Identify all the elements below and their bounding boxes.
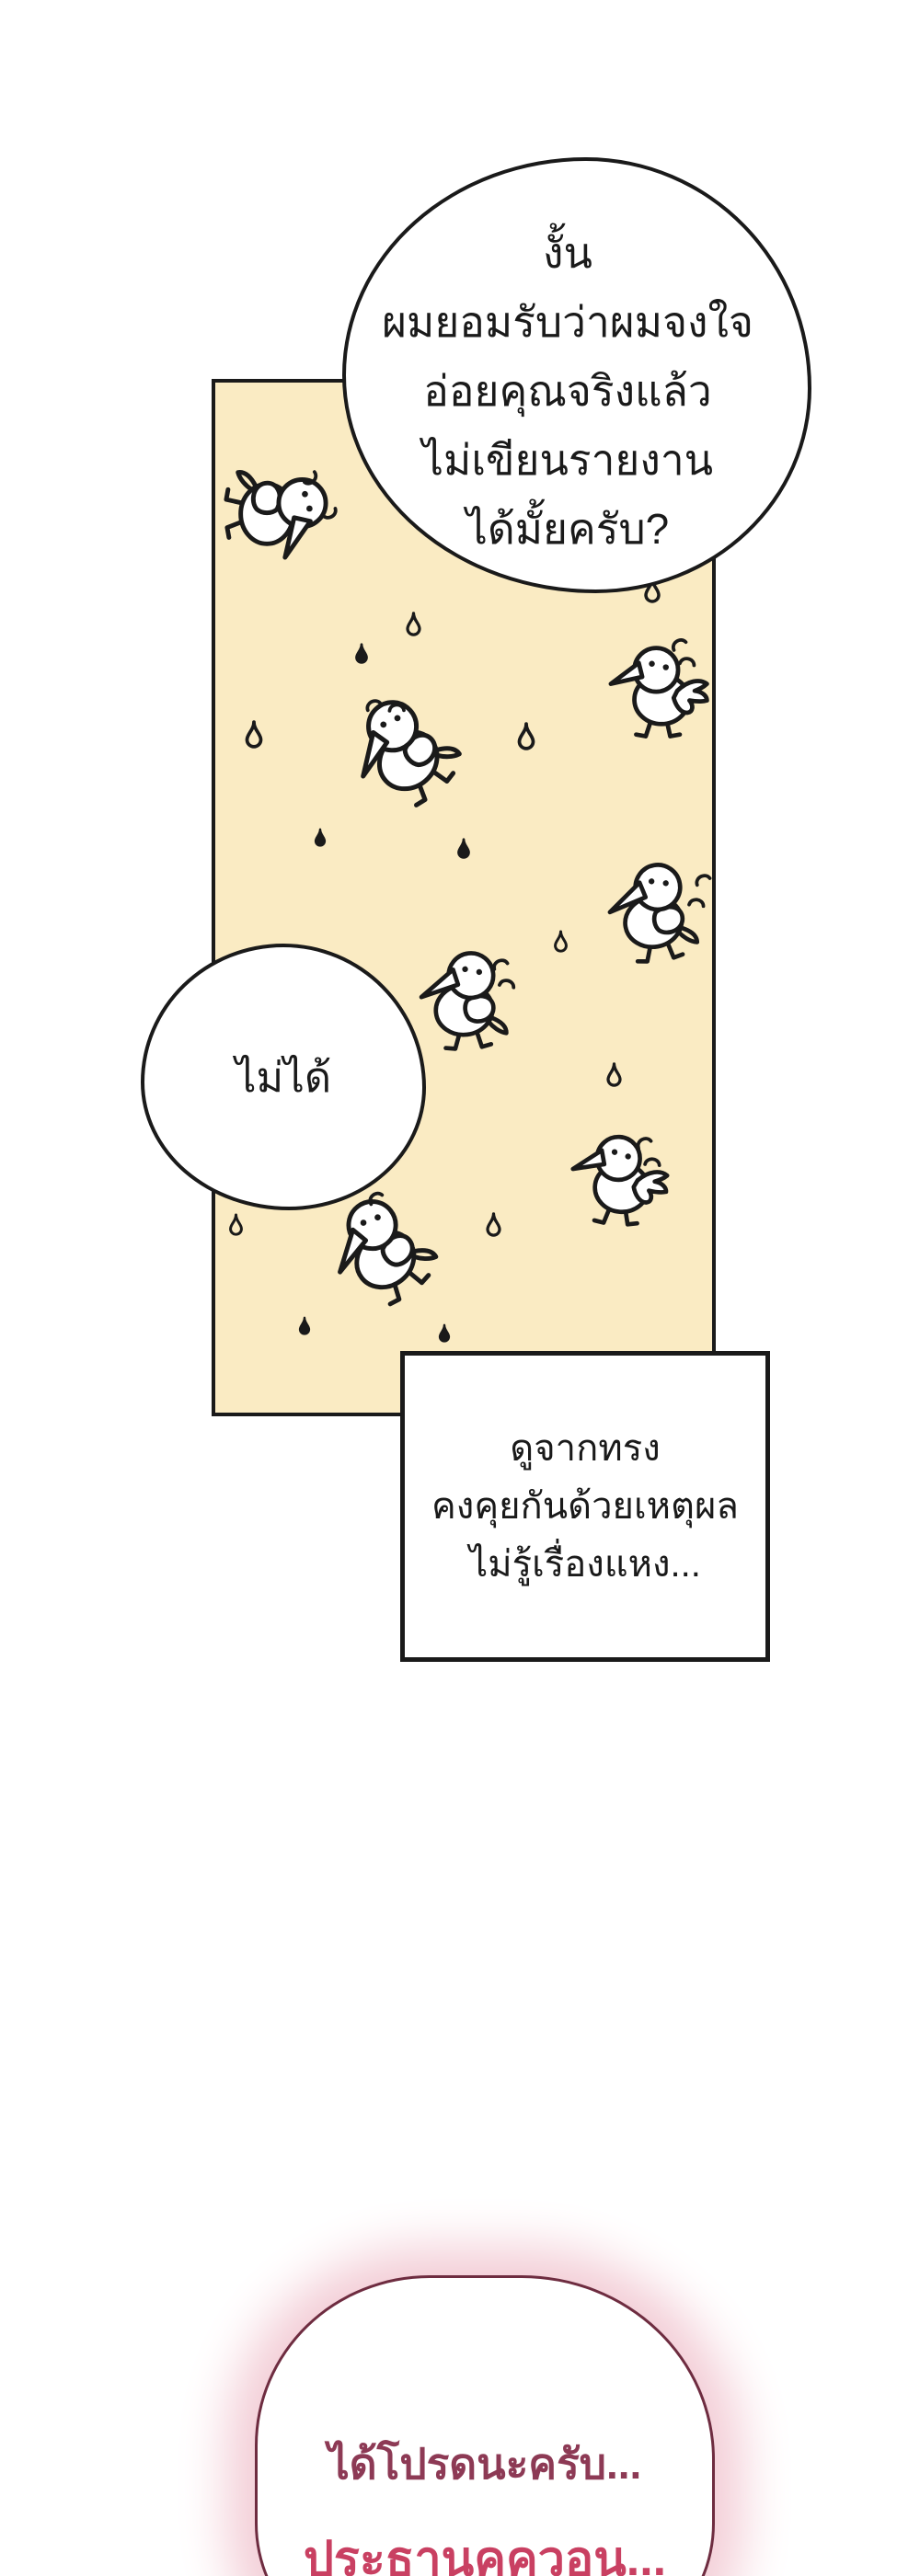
thought-box: ดูจากทรง คงคุยกันด้วยเหตุผล ไม่รู้เรื่อง… — [400, 1351, 770, 1662]
speech-text-line: ไม่เขียนรายงาน — [422, 426, 713, 495]
speech-text-line: ไม่ได้ — [236, 1044, 331, 1110]
plea-text-line-2: ประธานคควอน... — [304, 2520, 666, 2576]
speech-text-line: งั้น — [543, 219, 592, 288]
speech-text-line: อ่อยคุณจริงแล้ว — [423, 357, 711, 426]
speech-bubble-plea: ได้โปรดนะครับ... ประธานคควอน... — [255, 2275, 715, 2576]
thought-text-line: ดูจากทรง — [510, 1420, 660, 1478]
thought-text-line: คงคุยกันด้วยเหตุผล — [431, 1478, 739, 1536]
plea-text-line-1: ได้โปรดนะครับ... — [328, 2431, 642, 2498]
thought-text-line: ไม่รู้เรื่องแหง... — [469, 1536, 701, 1594]
speech-text-line: ได้มั้ยครับ? — [466, 495, 670, 564]
speech-text-line: ผมยอมรับว่าผมจงใจ — [382, 288, 753, 357]
comic-page: งั้น ผมยอมรับว่าผมจงใจ อ่อยคุณจริงแล้ว ไ… — [0, 0, 920, 2576]
